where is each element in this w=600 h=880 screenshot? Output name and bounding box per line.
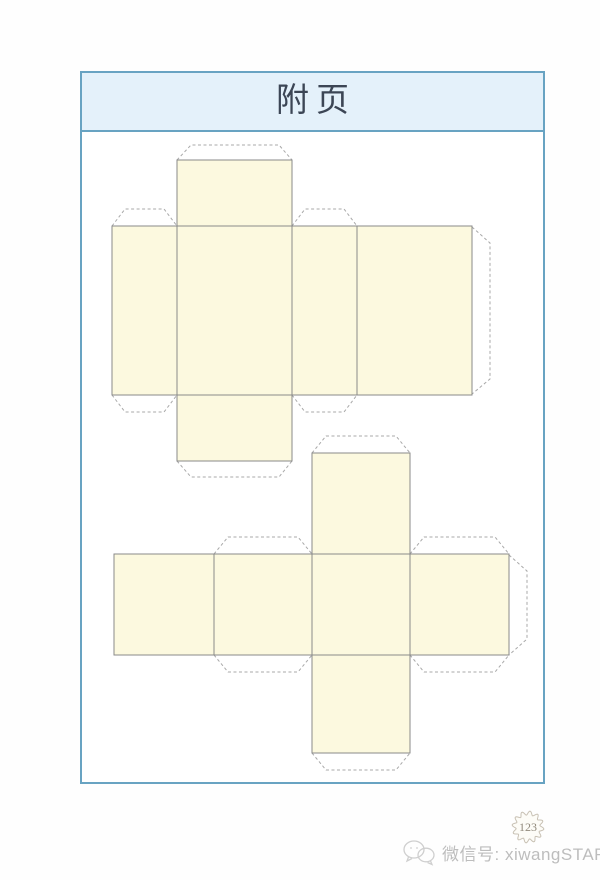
watermark: 微信号: xiwangSTAR: [402, 839, 600, 866]
page-header: 附页: [82, 73, 543, 132]
watermark-text: 微信号: xiwangSTAR: [442, 840, 600, 865]
scanned-textbook-page: 附页 123 微信号: xiwangSTAR: [0, 0, 600, 880]
page-title: 附页: [269, 85, 356, 118]
page-number: 123: [519, 820, 537, 834]
page-frame: 附页: [80, 71, 545, 784]
wechat-icon: [402, 839, 436, 866]
